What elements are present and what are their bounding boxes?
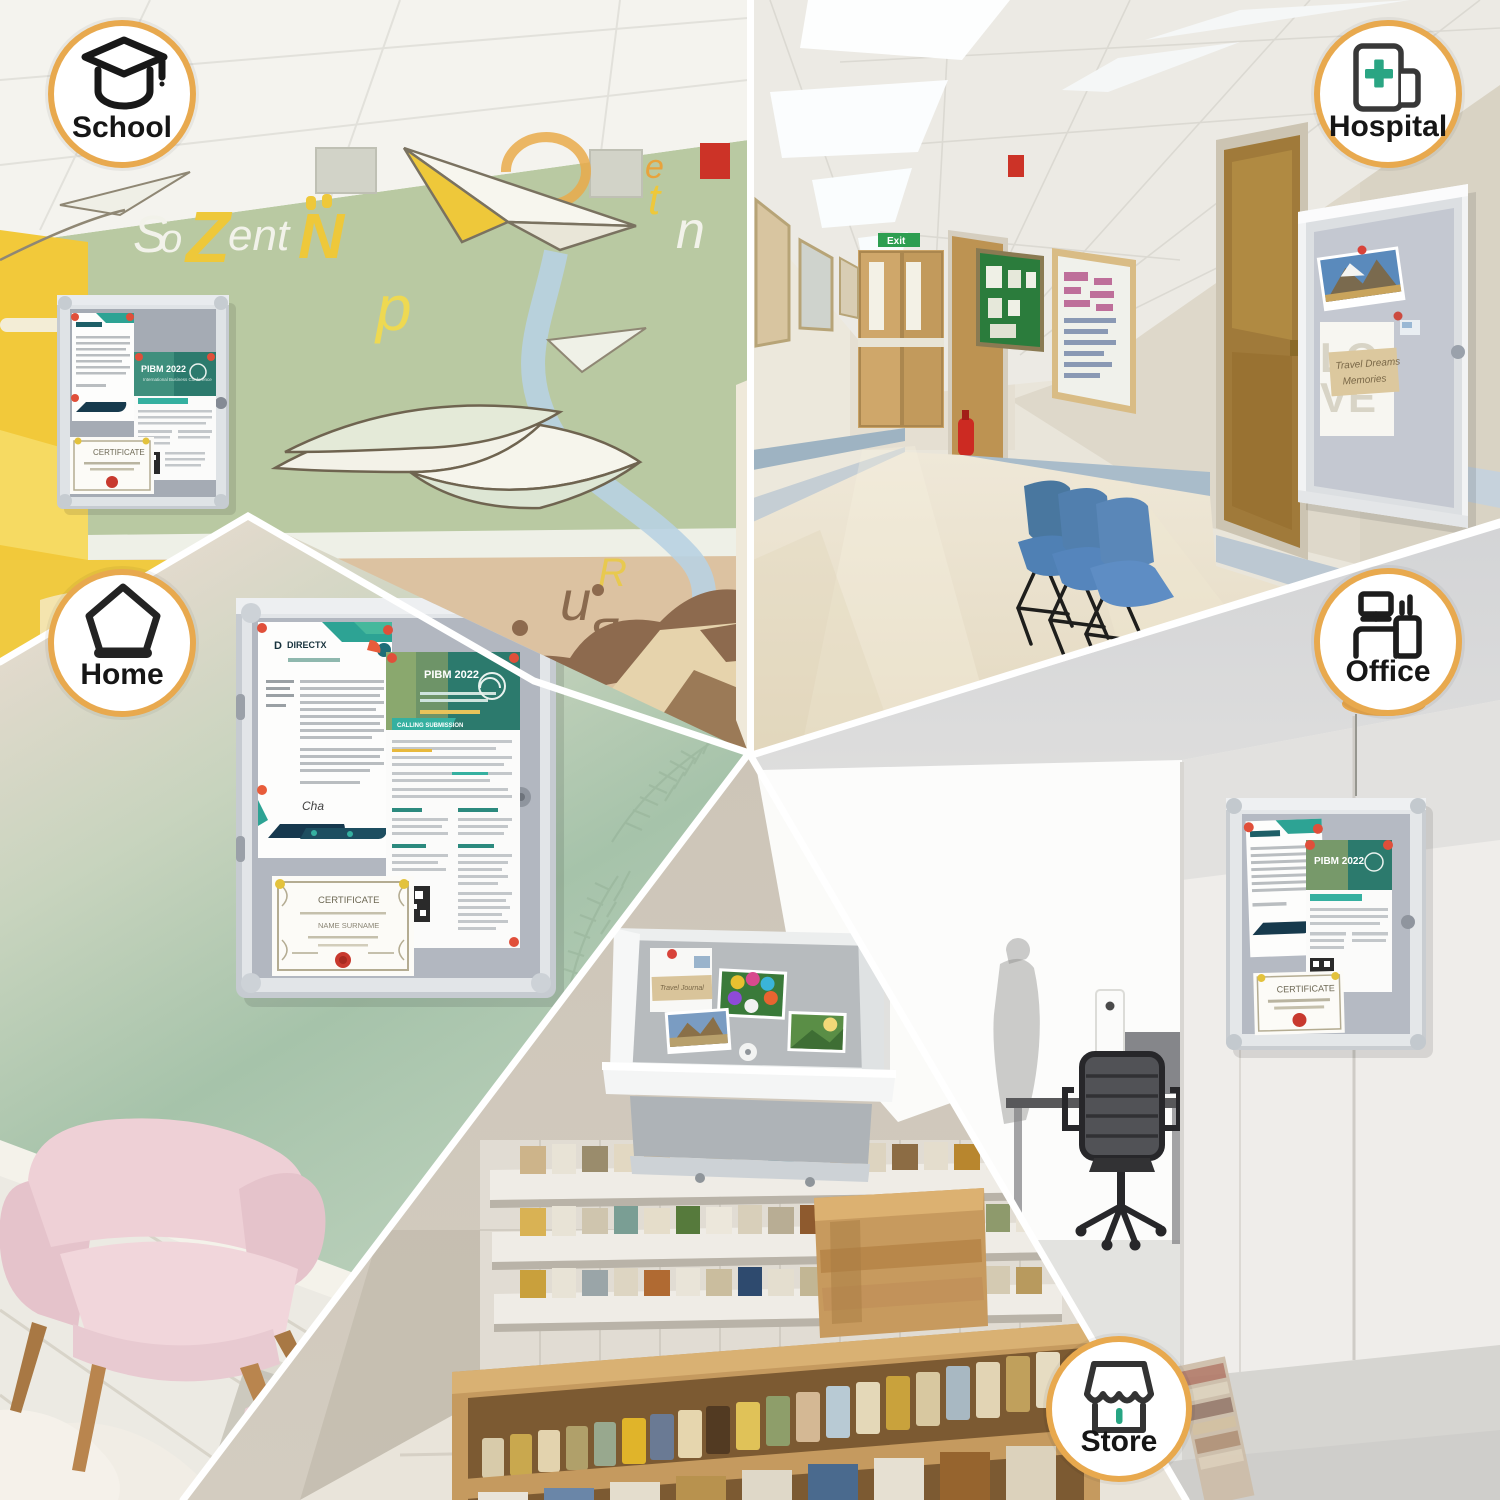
svg-text:Office: Office bbox=[1345, 655, 1430, 688]
svg-text:p: p bbox=[374, 272, 412, 344]
svg-text:NAME SURNAME: NAME SURNAME bbox=[318, 921, 379, 930]
svg-text:u: u bbox=[560, 569, 591, 632]
svg-text:Hospital: Hospital bbox=[1329, 110, 1447, 143]
svg-text:o: o bbox=[160, 217, 182, 261]
svg-text:Cha: Cha bbox=[302, 799, 324, 813]
svg-text:D: D bbox=[274, 640, 282, 652]
svg-text:Exit: Exit bbox=[887, 236, 906, 247]
svg-text:School: School bbox=[72, 111, 172, 144]
svg-text:t: t bbox=[648, 175, 662, 224]
svg-text:N: N bbox=[298, 200, 346, 272]
svg-text:Z: Z bbox=[184, 198, 233, 278]
svg-text:CALLING SUBMISSION: CALLING SUBMISSION bbox=[397, 723, 463, 729]
svg-text:n: n bbox=[676, 202, 705, 260]
svg-text:PIBM 2022: PIBM 2022 bbox=[1314, 856, 1364, 867]
svg-text:Travel Journal: Travel Journal bbox=[660, 985, 704, 992]
svg-text:CERTIFICATE: CERTIFICATE bbox=[93, 448, 145, 457]
svg-text:Home: Home bbox=[80, 658, 163, 691]
svg-text:PIBM 2022: PIBM 2022 bbox=[424, 669, 479, 681]
svg-text:Store: Store bbox=[1081, 1425, 1158, 1458]
svg-text:PIBM 2022: PIBM 2022 bbox=[141, 364, 186, 374]
svg-text:CERTIFICATE: CERTIFICATE bbox=[318, 895, 379, 906]
svg-text:ent: ent bbox=[228, 211, 291, 260]
svg-text:CERTIFICATE: CERTIFICATE bbox=[1277, 983, 1335, 995]
svg-text:DIRECTX: DIRECTX bbox=[287, 640, 327, 650]
